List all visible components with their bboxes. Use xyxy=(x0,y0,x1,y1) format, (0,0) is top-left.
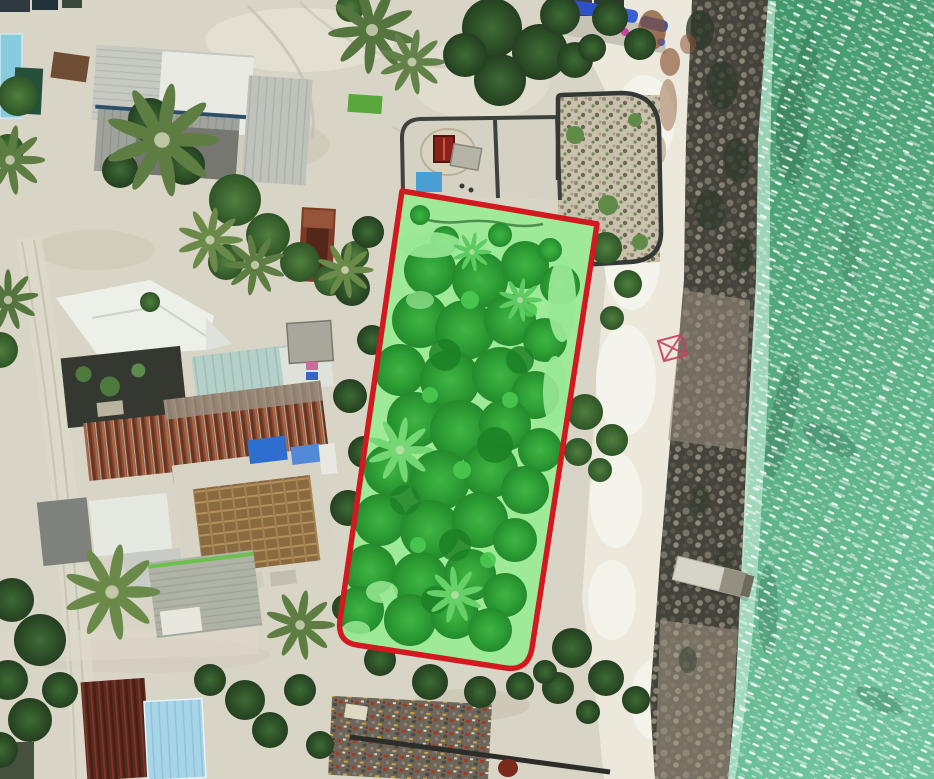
hedge xyxy=(347,94,382,114)
blue-tarp xyxy=(416,172,442,192)
laundry-blue xyxy=(306,372,318,380)
small-gray-shed xyxy=(287,321,334,364)
gray-panel xyxy=(450,144,481,171)
aerial-photo xyxy=(0,0,934,779)
rock-light-bottom xyxy=(655,620,738,779)
laundry-pink xyxy=(306,362,318,370)
white-object xyxy=(318,443,337,475)
